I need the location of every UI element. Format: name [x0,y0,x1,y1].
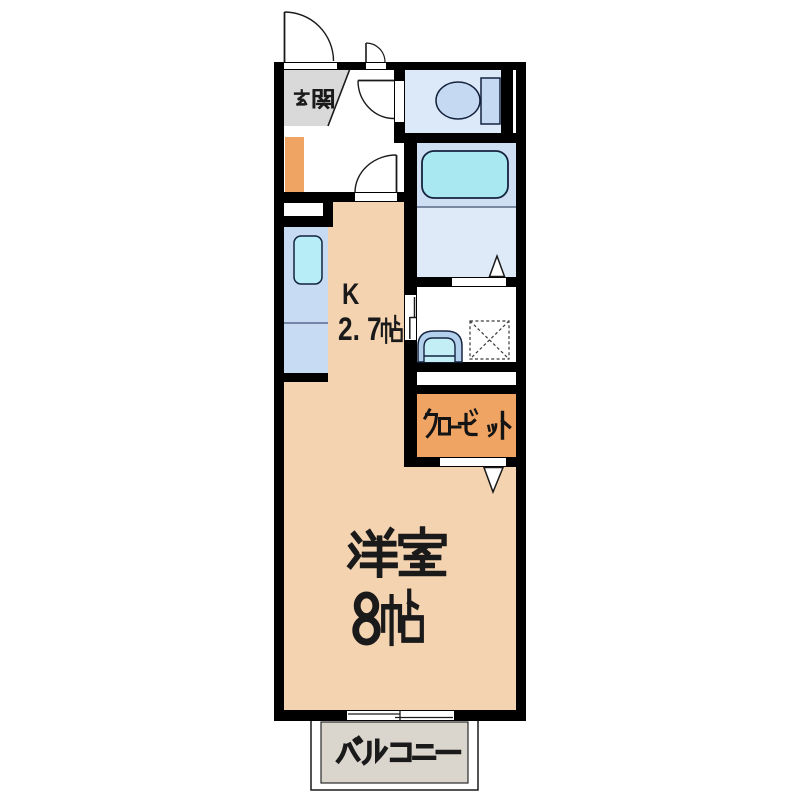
svg-text:7: 7 [367,313,382,348]
svg-text:K: K [342,276,360,310]
svg-text:2.: 2. [338,313,360,348]
